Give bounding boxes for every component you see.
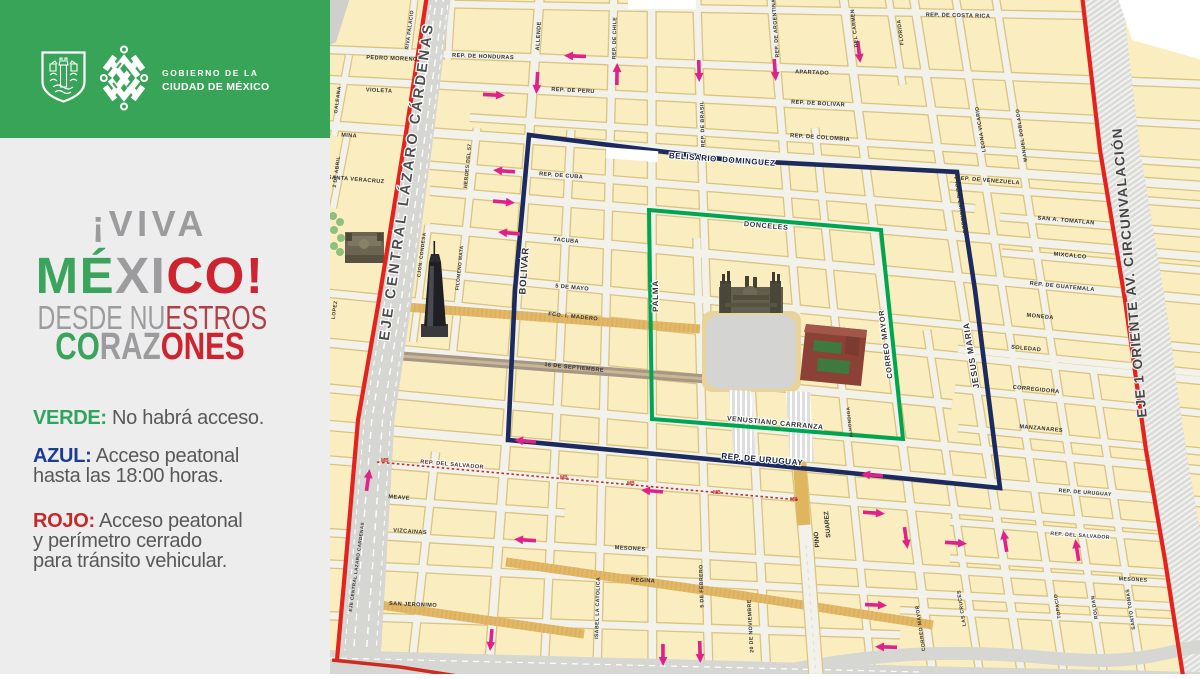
svg-text:MB: MB	[560, 475, 568, 481]
svg-text:REGINA: REGINA	[631, 577, 655, 584]
svg-text:MINA: MINA	[341, 132, 357, 139]
svg-text:5 DE FEBRERO: 5 DE FEBRERO	[698, 564, 705, 607]
svg-text:PALMA: PALMA	[651, 280, 660, 312]
svg-text:MB: MB	[790, 497, 798, 503]
svg-text:MB: MB	[713, 490, 721, 496]
svg-text:MB: MB	[381, 458, 389, 464]
svg-text:PINO: PINO	[813, 531, 821, 547]
svg-text:REP. DE CHILE: REP. DE CHILE	[612, 17, 619, 60]
svg-text:MB: MB	[627, 481, 635, 487]
